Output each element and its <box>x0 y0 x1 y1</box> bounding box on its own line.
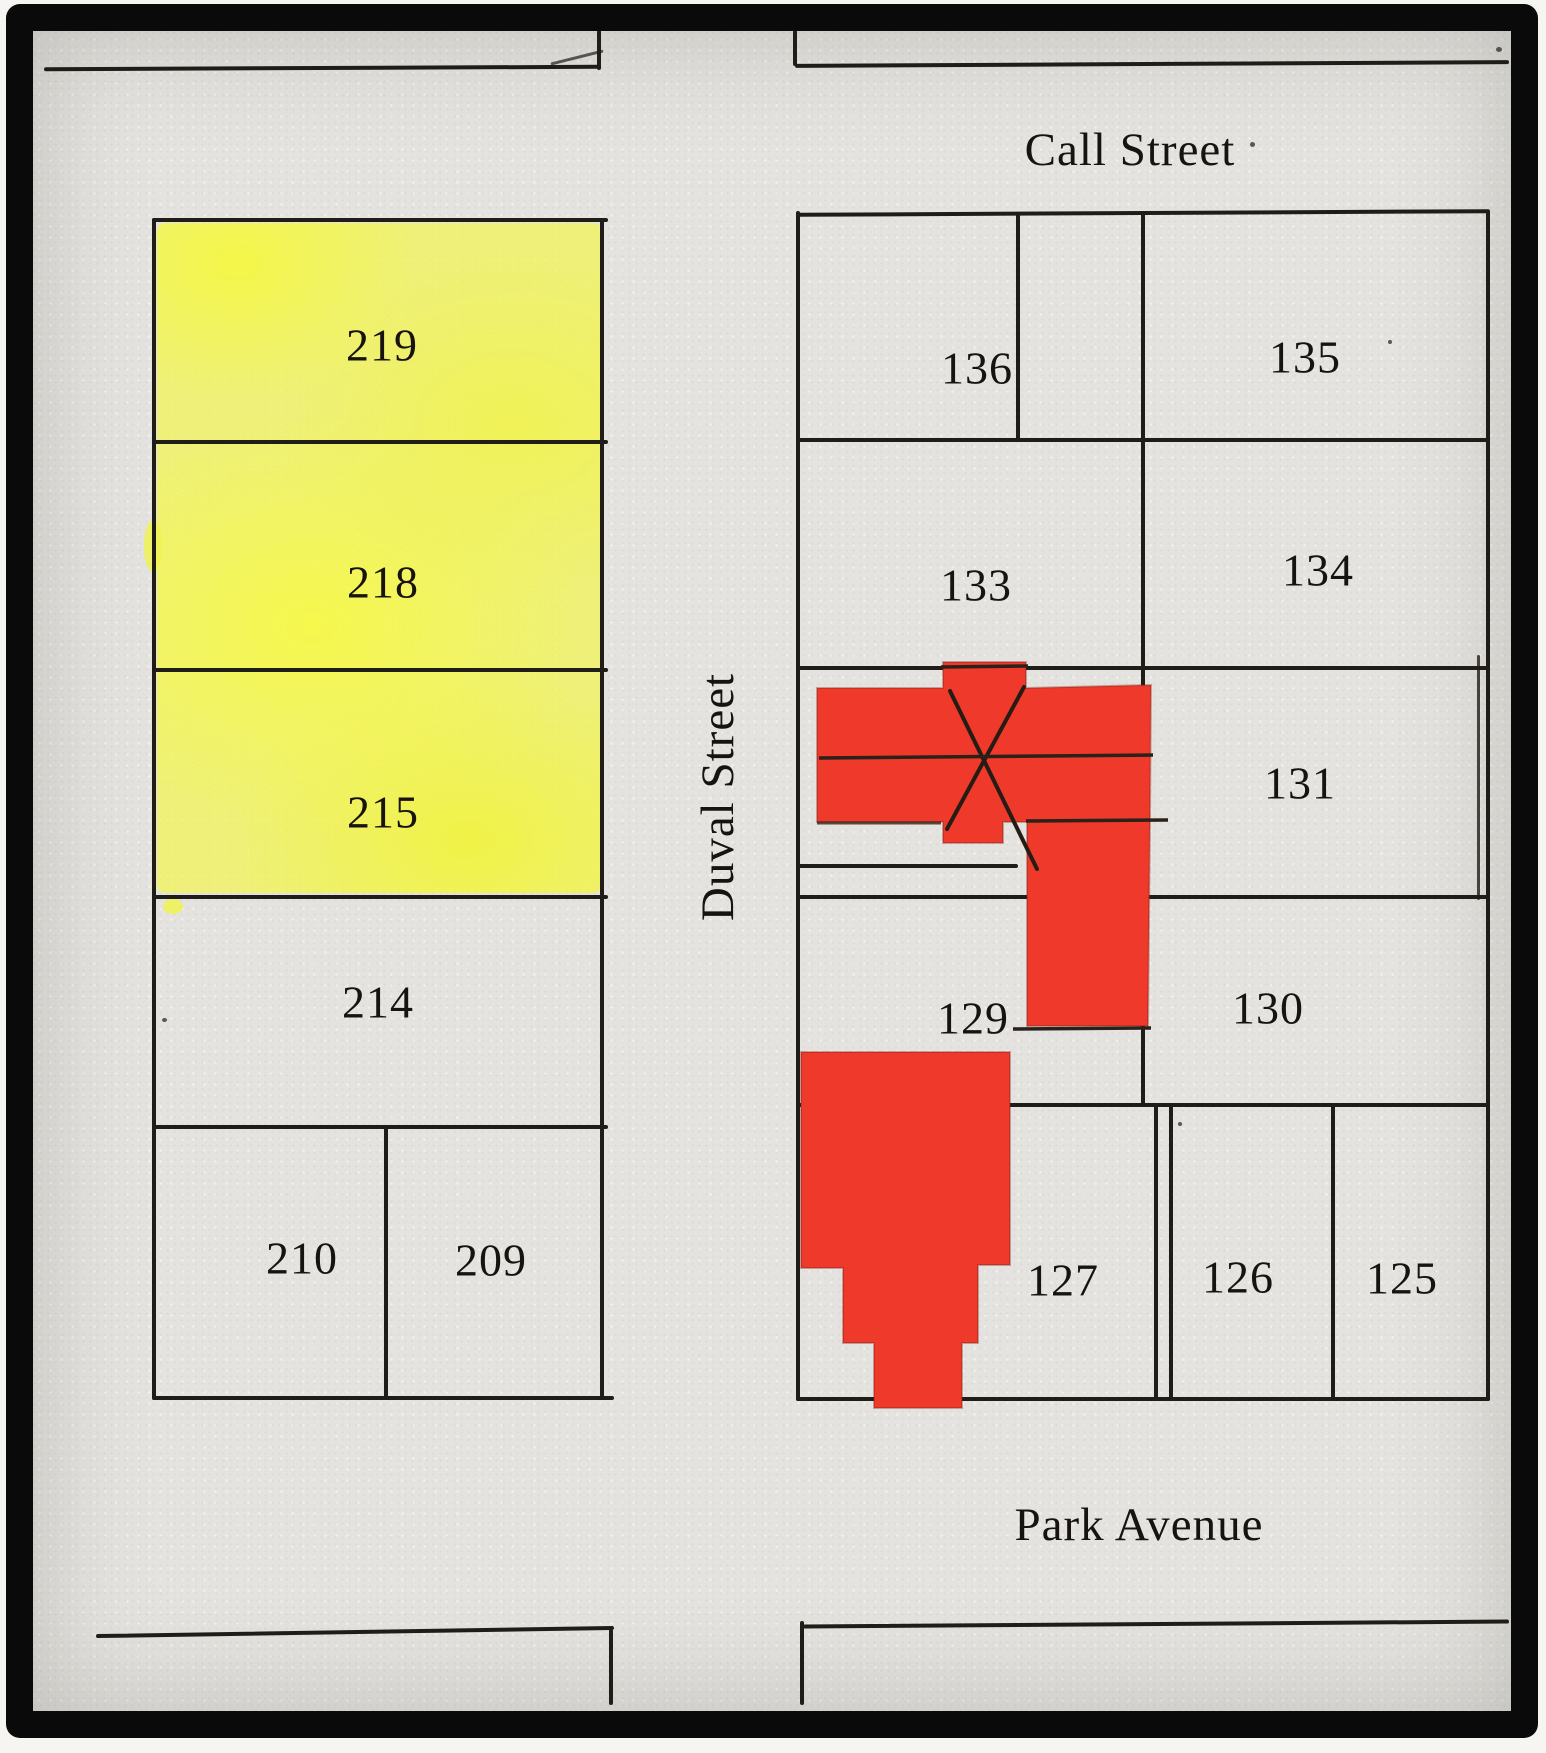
street-label-duval: Duval Street <box>691 673 745 921</box>
lot-number-label: 130 <box>1232 982 1304 1035</box>
lot-219: 219 <box>154 220 604 442</box>
lot-131: 131 <box>1144 668 1488 897</box>
plat-map-scan: 219 218 215 214 210 209 136 135 133 134 … <box>0 0 1546 1753</box>
lot-number-label: 215 <box>347 786 419 839</box>
lot-number-label: 131 <box>1264 757 1336 810</box>
lot-125: 125 <box>1334 1105 1488 1400</box>
lot-214: 214 <box>154 897 604 1127</box>
lot-number-label: 209 <box>455 1234 527 1287</box>
lot-215: 215 <box>154 670 604 897</box>
lot-134: 134 <box>1144 440 1488 668</box>
lot-129: 129 <box>798 897 1144 1105</box>
lot-number-label: 129 <box>937 992 1009 1045</box>
lot-210: 210 <box>154 1127 386 1398</box>
street-label-call: Call Street <box>1025 123 1236 177</box>
lot-130: 130 <box>1144 897 1488 1105</box>
lot-number-label: 134 <box>1282 544 1354 597</box>
lot-135: 135 <box>1144 213 1488 440</box>
lot-126: 126 <box>1157 1105 1334 1400</box>
lot-number-label: 135 <box>1269 331 1341 384</box>
lot-number-label: 125 <box>1366 1252 1438 1305</box>
lot-127: 127 <box>798 1105 1157 1400</box>
lot-number-label: 126 <box>1202 1251 1274 1304</box>
lot-number-label: 219 <box>346 319 418 372</box>
lot-number-label: 133 <box>940 559 1012 612</box>
lot-number-label: 214 <box>342 976 414 1029</box>
lot-218: 218 <box>154 442 604 670</box>
lot-number-label: 210 <box>266 1232 338 1285</box>
lot-number-label: 218 <box>347 556 419 609</box>
lot-133: 133 <box>798 440 1144 668</box>
lot-number-label: 127 <box>1027 1254 1099 1307</box>
lot-209: 209 <box>386 1127 604 1398</box>
lot-136: 136 <box>798 213 1018 440</box>
street-label-park: Park Avenue <box>1015 1498 1264 1552</box>
lot-number-label: 136 <box>941 342 1013 395</box>
